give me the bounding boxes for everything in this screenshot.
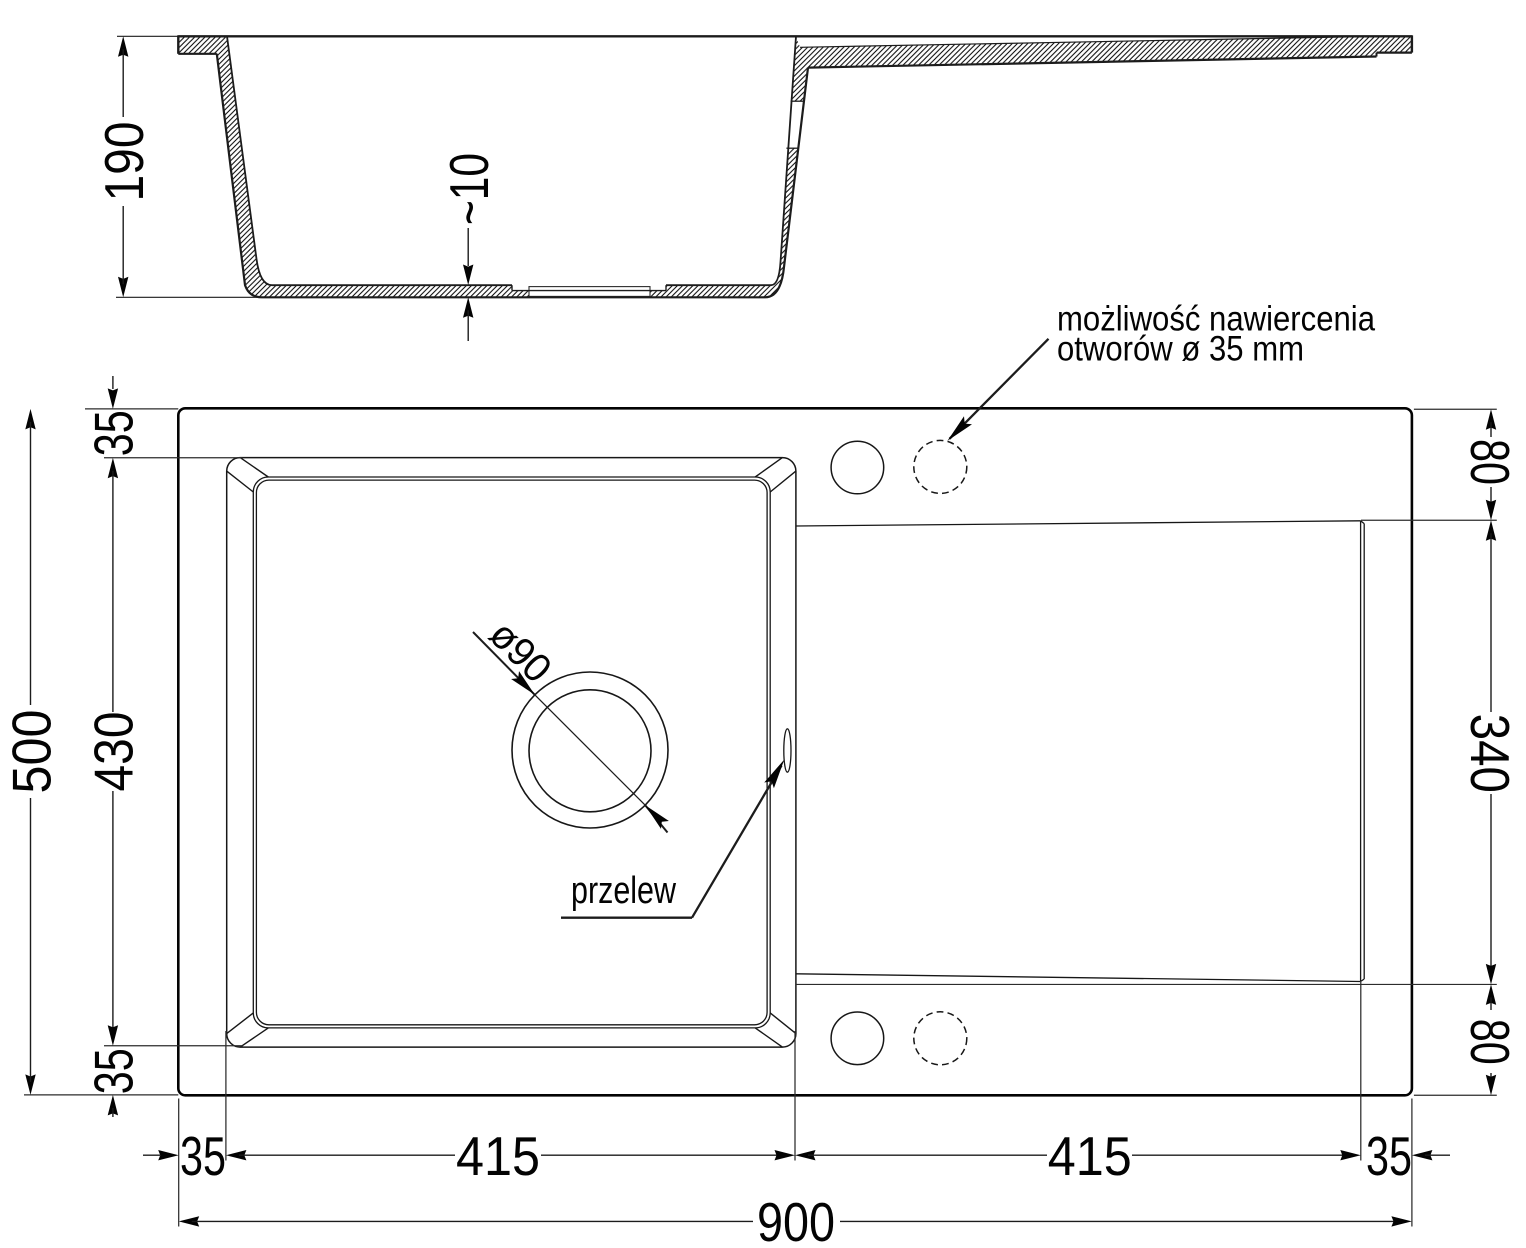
svg-text:80: 80 [1459, 1019, 1521, 1065]
svg-text:415: 415 [1048, 1125, 1132, 1187]
svg-text:190: 190 [93, 122, 155, 202]
svg-text:przelew: przelew [571, 870, 676, 912]
svg-text:340: 340 [1459, 714, 1521, 793]
svg-text:35: 35 [83, 1048, 145, 1094]
svg-text:430: 430 [83, 712, 145, 792]
svg-text:35: 35 [83, 410, 145, 456]
svg-text:otworów ø 35 mm: otworów ø 35 mm [1057, 330, 1304, 369]
svg-text:415: 415 [456, 1125, 540, 1187]
svg-text:900: 900 [757, 1191, 835, 1248]
svg-text:35: 35 [1366, 1125, 1412, 1187]
svg-text:80: 80 [1459, 439, 1521, 485]
svg-text:500: 500 [0, 710, 62, 794]
svg-text:35: 35 [180, 1125, 226, 1187]
svg-text:~10: ~10 [438, 153, 500, 225]
